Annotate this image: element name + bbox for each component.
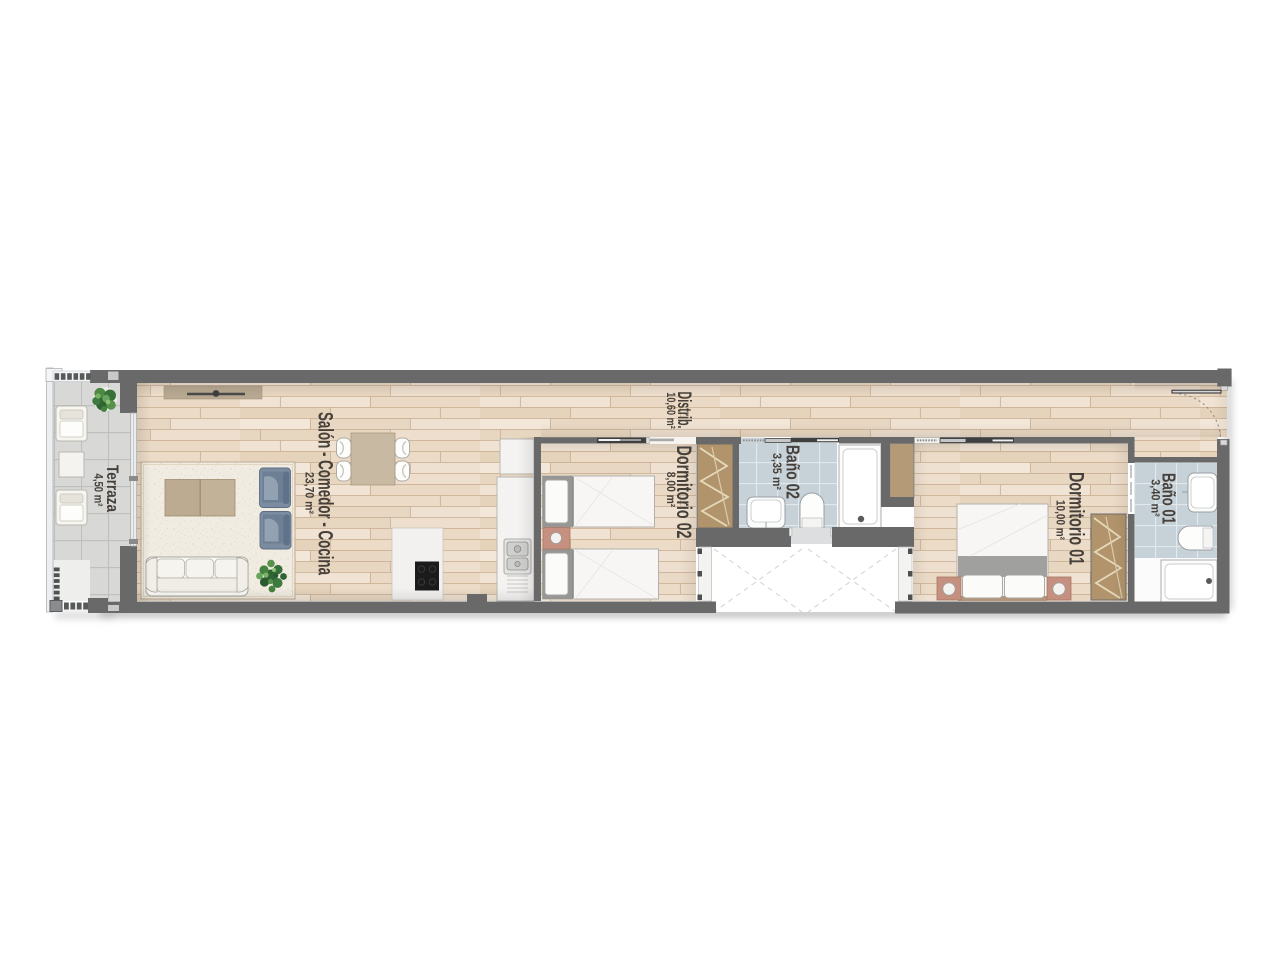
svg-text:10,00 m²: 10,00 m² <box>1054 500 1066 540</box>
svg-text:3,40 m²: 3,40 m² <box>1149 479 1161 517</box>
svg-text:4,50 m²: 4,50 m² <box>92 474 104 507</box>
svg-text:Baño 01: Baño 01 <box>1159 473 1179 524</box>
svg-text:Baño 02: Baño 02 <box>783 445 803 499</box>
svg-text:Terraza: Terraza <box>103 465 122 512</box>
svg-text:10,60 m²: 10,60 m² <box>664 392 678 429</box>
svg-text:8,00 m²: 8,00 m² <box>664 472 676 508</box>
svg-text:Dormitorio 01: Dormitorio 01 <box>1065 472 1088 565</box>
svg-text:23,70 m²: 23,70 m² <box>303 472 315 514</box>
svg-text:3,35 m²: 3,35 m² <box>770 453 782 490</box>
svg-text:Salón - Comedor - Cocina: Salón - Comedor - Cocina <box>314 412 337 575</box>
